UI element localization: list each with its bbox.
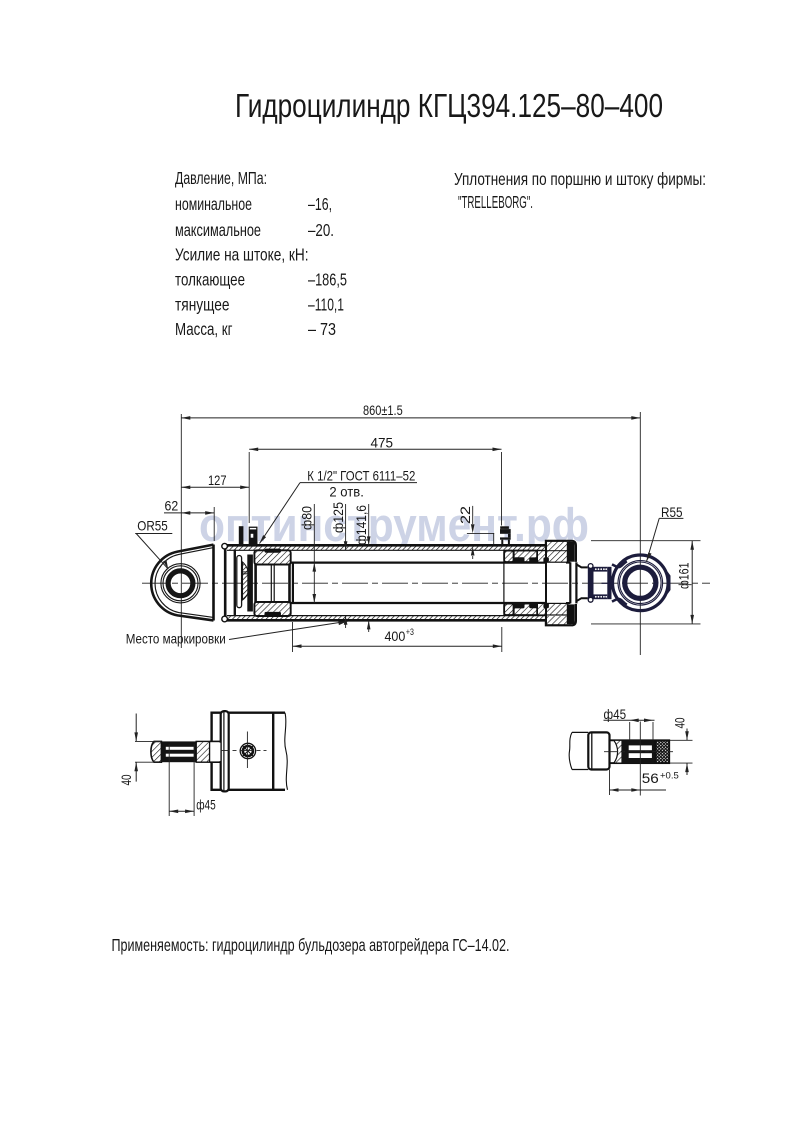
svg-text:R55: R55 xyxy=(661,504,683,520)
svg-text:Усилие на штоке, кН:: Усилие на штоке, кН: xyxy=(175,245,309,265)
svg-text:–186,5: –186,5 xyxy=(308,270,347,290)
svg-text:400: 400 xyxy=(385,628,406,644)
svg-text:OR55: OR55 xyxy=(137,517,168,533)
svg-text:ф125: ф125 xyxy=(330,502,346,533)
svg-text:Давление, МПа:: Давление, МПа: xyxy=(175,168,267,188)
svg-text:тянущее: тянущее xyxy=(175,295,230,315)
svg-text:Место маркировки: Место маркировки xyxy=(126,631,226,647)
svg-text:ф80: ф80 xyxy=(299,506,315,530)
svg-text:62: 62 xyxy=(165,498,179,514)
svg-text:ф161: ф161 xyxy=(676,562,692,589)
svg-text:толкающее: толкающее xyxy=(175,270,245,290)
svg-text:127: 127 xyxy=(208,472,227,488)
svg-text:860±1.5: 860±1.5 xyxy=(363,402,403,418)
svg-text:ф45: ф45 xyxy=(196,797,216,813)
svg-text:Применяемость: гидроцилиндр бу: Применяемость: гидроцилиндр бульдозера а… xyxy=(112,935,510,955)
svg-text:2 отв.: 2 отв. xyxy=(329,484,364,500)
svg-text:–110,1: –110,1 xyxy=(308,295,344,315)
svg-text:максимальное: максимальное xyxy=(175,220,261,240)
svg-text:Уплотнения по поршню и штоку ф: Уплотнения по поршню и штоку фирмы: xyxy=(454,169,706,189)
svg-text:475: 475 xyxy=(371,434,394,450)
svg-text:номинальное: номинальное xyxy=(175,194,252,214)
svg-text:Гидроцилиндр КГЦ394.125–80–400: Гидроцилиндр КГЦ394.125–80–400 xyxy=(235,87,663,124)
svg-text:– 73: – 73 xyxy=(308,319,336,339)
svg-text:"TRELLEBORG".: "TRELLEBORG". xyxy=(458,192,533,212)
svg-text:–16,: –16, xyxy=(308,194,332,214)
svg-text:К 1/2" ГОСТ 6111–52: К 1/2" ГОСТ 6111–52 xyxy=(307,468,415,484)
svg-text:40: 40 xyxy=(672,717,688,728)
svg-text:22: 22 xyxy=(457,506,473,524)
svg-text:Масса, кг: Масса, кг xyxy=(175,319,233,339)
svg-text:–20.: –20. xyxy=(308,220,334,240)
svg-text:56: 56 xyxy=(642,770,659,786)
svg-text:40: 40 xyxy=(118,774,134,785)
svg-text:ф45: ф45 xyxy=(604,706,627,722)
svg-text:+3: +3 xyxy=(406,627,414,638)
svg-text:+0.5: +0.5 xyxy=(660,771,679,782)
svg-text:ф141,6: ф141,6 xyxy=(353,505,369,545)
